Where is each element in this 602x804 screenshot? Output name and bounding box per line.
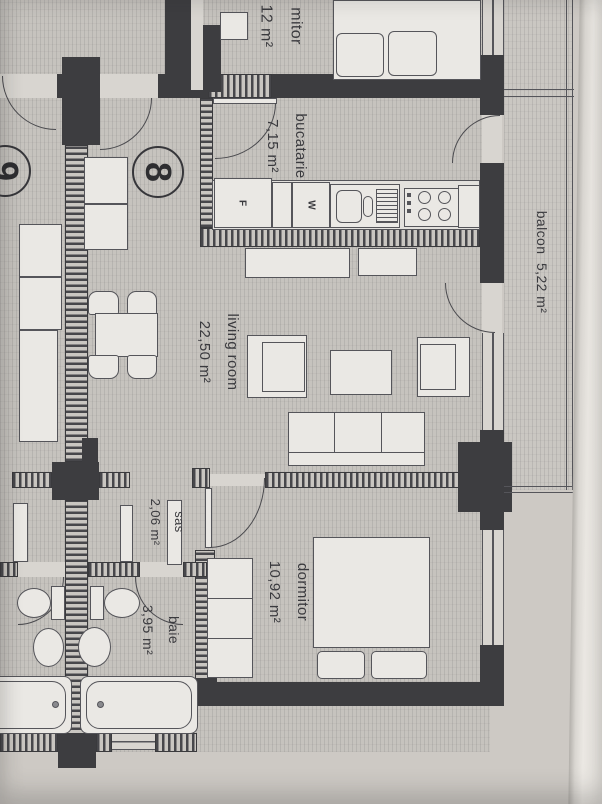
stove-knob bbox=[407, 209, 411, 213]
wall-upper-vertical bbox=[165, 0, 191, 92]
wall-bottom-baie8a bbox=[96, 733, 112, 752]
room-name: sas bbox=[167, 499, 191, 546]
room-label-baie: baie 3,95 m² bbox=[134, 605, 186, 655]
upper-door-opening bbox=[191, 0, 203, 90]
toilet-tank bbox=[51, 586, 65, 620]
wall-top-left-pier bbox=[62, 57, 100, 145]
wall-bottom-dormitor bbox=[197, 682, 504, 706]
washer-letter: W bbox=[306, 200, 317, 209]
room-area: 2,06 m² bbox=[143, 499, 167, 546]
nightstand-top-room bbox=[220, 12, 248, 40]
counter-end bbox=[458, 185, 480, 228]
armchair-seat bbox=[262, 342, 305, 392]
paper-edge bbox=[568, 0, 602, 804]
wall-bottom-baie8b bbox=[155, 733, 197, 752]
unit8-entry-opening bbox=[98, 74, 158, 98]
room-label-dormitor: dormitor 10,92 m² bbox=[260, 561, 316, 623]
sofa-cushion-line bbox=[381, 413, 382, 452]
toilet-bowl bbox=[17, 588, 51, 618]
room-label-living: living room 22,50 m² bbox=[190, 314, 246, 391]
sink-drainer bbox=[376, 189, 398, 223]
window-baie bbox=[112, 733, 155, 750]
wall-right-1 bbox=[480, 55, 504, 115]
room-area: 10,92 m² bbox=[260, 561, 288, 623]
unit9-closet bbox=[19, 224, 62, 277]
pillar-right bbox=[458, 442, 512, 512]
sideboard bbox=[245, 248, 350, 278]
wall-sas-baie-1 bbox=[88, 562, 140, 577]
fridge-letter: F bbox=[237, 200, 248, 206]
wall-sas-baie-2 bbox=[183, 562, 207, 577]
pillow bbox=[371, 651, 427, 679]
wall-living-sas-pier bbox=[192, 468, 210, 488]
stove-knob bbox=[407, 193, 411, 197]
stove-burner bbox=[438, 191, 451, 204]
room-name: living room bbox=[218, 314, 246, 391]
stove-burner bbox=[418, 191, 431, 204]
balcony-divider-line bbox=[504, 89, 574, 97]
armchair-seat bbox=[420, 344, 456, 390]
coffee-table bbox=[330, 350, 392, 395]
bed-dormitor bbox=[313, 537, 430, 648]
room-area: 12 m² bbox=[251, 5, 281, 48]
dining-chair bbox=[127, 355, 157, 379]
washbasin bbox=[33, 628, 64, 667]
hall-closet bbox=[84, 204, 128, 250]
room-area: 5,22 m² bbox=[534, 263, 550, 313]
room-name: dormitor bbox=[288, 561, 316, 623]
wall-right-2 bbox=[480, 163, 504, 283]
room-name: bucatarie bbox=[286, 113, 314, 178]
sideboard bbox=[358, 248, 417, 276]
washer-label: W bbox=[306, 200, 317, 209]
wardrobe-division bbox=[208, 598, 252, 599]
dining-chair bbox=[88, 291, 119, 315]
stove-knob bbox=[407, 201, 411, 205]
radiator bbox=[13, 503, 28, 562]
sofa bbox=[288, 412, 425, 466]
wall-upper-stub bbox=[203, 25, 221, 92]
toilet-tank bbox=[90, 586, 104, 620]
wall-living-sas-left9 bbox=[12, 472, 52, 488]
window-dormitor bbox=[482, 530, 504, 645]
unit-number-8: 8 bbox=[132, 146, 184, 198]
sofa-back-line bbox=[289, 452, 424, 453]
window-top-room bbox=[482, 0, 504, 55]
window-living bbox=[482, 333, 504, 430]
fridge-label: F bbox=[237, 200, 248, 206]
radiator bbox=[120, 505, 133, 562]
wall-living-dormitor bbox=[265, 472, 460, 488]
party-wall-segment bbox=[82, 438, 98, 464]
room-label-balcon: balcon 5,22 m² bbox=[528, 211, 554, 314]
dining-chair bbox=[88, 355, 119, 379]
sink-basin bbox=[336, 190, 362, 223]
stove-burner bbox=[418, 208, 431, 221]
unit-number-text: 8 bbox=[137, 162, 179, 182]
room-area: 3,95 m² bbox=[134, 605, 160, 655]
balcony-railing bbox=[566, 0, 573, 490]
wall-kitchen-living bbox=[200, 228, 480, 247]
dining-chair bbox=[127, 291, 157, 315]
room-label-bucatarie: bucatarie 7,15 m² bbox=[258, 113, 314, 178]
wall-right-4 bbox=[480, 512, 504, 530]
wall-living-sas-1 bbox=[99, 472, 130, 488]
wardrobe-division bbox=[208, 638, 252, 639]
wall-bottom-baie9 bbox=[0, 733, 58, 752]
bathtub-drain bbox=[52, 701, 59, 708]
pillow bbox=[388, 31, 437, 76]
baie9-door-opening bbox=[18, 562, 65, 577]
unit9-counter bbox=[19, 330, 58, 442]
wall-sas-baie-left9 bbox=[0, 562, 18, 577]
room-area: 22,50 m² bbox=[190, 314, 218, 391]
room-name: balcon bbox=[534, 211, 550, 255]
dining-table bbox=[95, 313, 158, 357]
sink-basin-small bbox=[363, 196, 373, 217]
room-area: 7,15 m² bbox=[258, 113, 286, 178]
stove-burner bbox=[438, 208, 451, 221]
washbasin bbox=[78, 627, 111, 667]
wardrobe bbox=[207, 558, 253, 678]
party-wall-junction-block bbox=[52, 462, 99, 500]
stove bbox=[404, 188, 460, 227]
party-wall-end-block bbox=[58, 733, 96, 768]
unit9-closet bbox=[19, 277, 62, 330]
kitchen-cabinet bbox=[272, 182, 292, 228]
unit-number-text: 9 bbox=[0, 161, 26, 181]
room-label-top-dormitor: mitor 12 m² bbox=[251, 5, 310, 48]
floor-plan-photo: mitor 12 m² bucatarie 7,15 m² living roo… bbox=[0, 0, 602, 804]
room-name: mitor bbox=[281, 5, 311, 48]
room-label-sas: sas 2,06 m² bbox=[143, 499, 191, 546]
pillow bbox=[317, 651, 365, 679]
room-name: baie bbox=[160, 605, 186, 655]
hall-closet bbox=[84, 157, 128, 204]
bathtub-drain bbox=[97, 701, 104, 708]
pillow bbox=[336, 33, 384, 77]
sofa-cushion-line bbox=[334, 413, 335, 452]
balcony-end-line bbox=[504, 486, 574, 493]
